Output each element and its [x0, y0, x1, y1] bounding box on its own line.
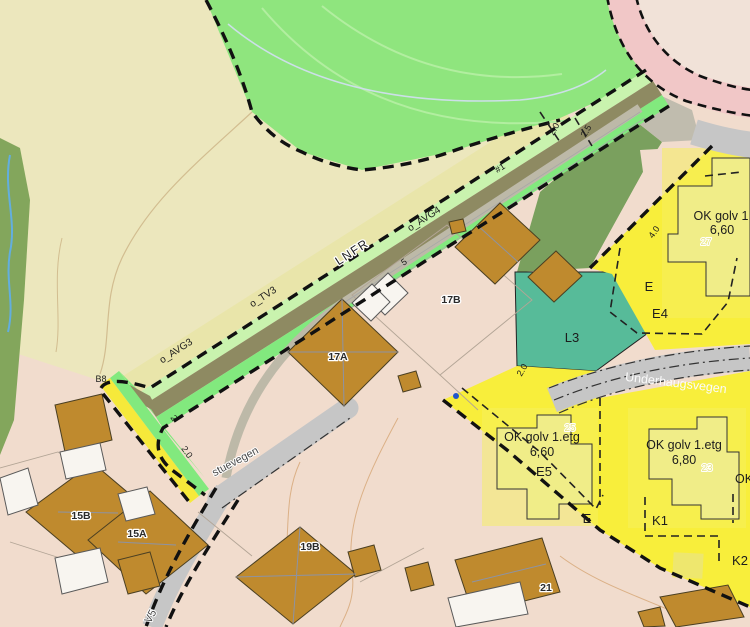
- label-ok-golv-3: OK golv 1.etg: [646, 438, 722, 452]
- label-ok-golv-1: OK golv 1: [694, 209, 749, 223]
- label-k2: K2: [732, 553, 748, 568]
- shed: [449, 219, 466, 234]
- house-number-21: 21: [540, 582, 552, 594]
- label-l3: L3: [565, 330, 579, 345]
- label-e5: E5: [536, 464, 552, 479]
- zoning-map: LNFR o_AVG4 o_TV3 o_AVG3 #1 B8 5 2 2.0 2…: [0, 0, 750, 627]
- map-canvas[interactable]: LNFR o_AVG4 o_TV3 o_AVG3 #1 B8 5 2 2.0 2…: [0, 0, 750, 627]
- label-e-mid: E: [583, 511, 592, 526]
- label-ok-golv-2-val: 6,60: [530, 445, 554, 459]
- road-grey-right: [694, 132, 750, 145]
- label-ok-golv-1-val: 6,60: [710, 223, 734, 237]
- label-b8: B8: [95, 374, 106, 384]
- shed: [405, 562, 434, 591]
- label-ok-golv-3-val: 6,80: [672, 453, 696, 467]
- label-k1: K1: [652, 513, 668, 528]
- house-number-15a: 15A: [127, 528, 147, 540]
- label-ok-edge: OK: [735, 472, 750, 486]
- label-e-ne: E: [645, 279, 654, 294]
- house-number-17a: 17A: [328, 351, 348, 363]
- label-e4: E4: [652, 306, 668, 321]
- house-number-27: 27: [700, 237, 712, 248]
- house-number-15b: 15B: [71, 510, 91, 522]
- house-number-17b: 17B: [441, 294, 461, 306]
- house-number-25: 25: [564, 423, 576, 434]
- house-number-19b: 19B: [300, 541, 320, 553]
- house-number-23: 23: [701, 463, 713, 474]
- point-marker[interactable]: [453, 393, 459, 399]
